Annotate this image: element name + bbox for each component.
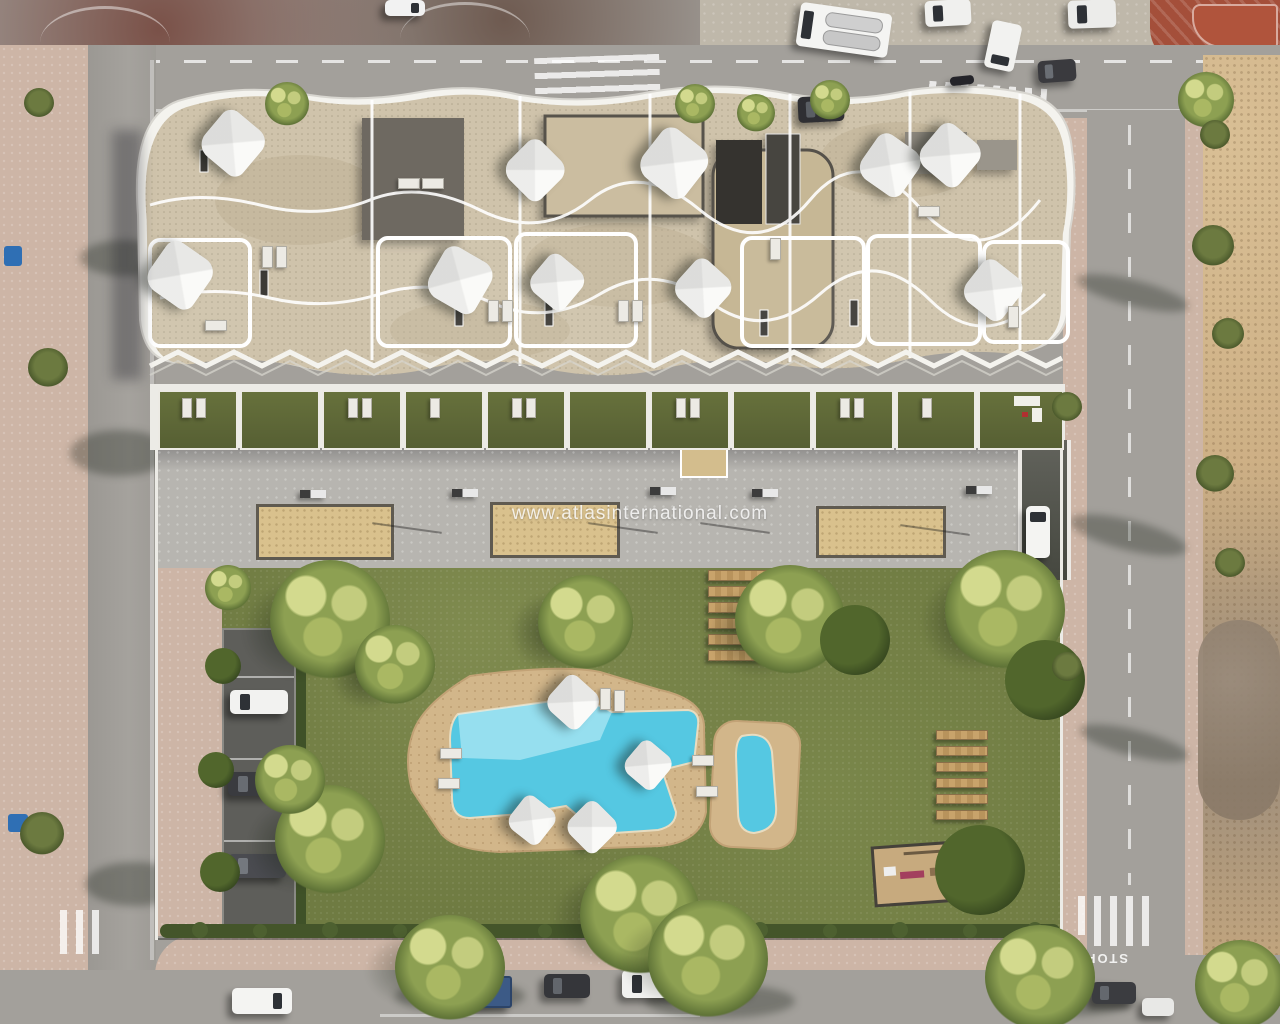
parked-car	[1068, 0, 1117, 29]
parking-car	[230, 690, 288, 714]
garden-bench-row	[936, 762, 988, 772]
roof-lounger	[770, 238, 781, 260]
street-tree	[395, 915, 505, 1020]
garden-bush	[205, 648, 241, 684]
street-palm	[675, 84, 715, 124]
sidewalk-shrub	[24, 88, 54, 118]
dirt-scrub	[1192, 225, 1234, 267]
roof-lounger	[398, 178, 420, 189]
dark-car	[1037, 59, 1076, 84]
dirt-scrub	[1215, 548, 1245, 578]
roadside-shrub	[1052, 652, 1082, 682]
pool-lounger	[696, 786, 718, 797]
roof-lounger	[488, 300, 499, 322]
garden-bench-row	[936, 810, 988, 820]
pool-lounger	[600, 688, 611, 710]
roof-lounger	[918, 206, 940, 217]
parked-car	[1092, 982, 1136, 1004]
roof-lounger	[1008, 306, 1019, 328]
building-roof	[130, 80, 1080, 380]
parked-car	[544, 974, 590, 998]
small-palm	[205, 565, 251, 611]
garden-bush	[198, 752, 234, 788]
roof-palm	[737, 94, 775, 132]
garden-bush	[200, 852, 240, 892]
roof-lounger	[632, 300, 643, 322]
dirt-scrub	[1212, 318, 1244, 350]
palm-tree	[255, 745, 325, 815]
aerial-residential-render: STOP	[0, 0, 1280, 1024]
roof-lounger	[618, 300, 629, 322]
parked-car	[385, 0, 425, 16]
roof-lounger	[262, 246, 273, 268]
garden-bush	[935, 825, 1025, 915]
garden-bench-row	[936, 794, 988, 804]
building-shadow	[112, 130, 142, 380]
pool-lounger	[440, 748, 462, 759]
palm-tree	[355, 625, 435, 705]
street-palm	[265, 82, 309, 126]
garden-bench-row	[936, 730, 988, 740]
roof-lounger	[502, 300, 513, 322]
watermark-text: www.atlasinternational.com	[400, 503, 880, 525]
pool-lounger	[614, 690, 625, 712]
garden-bush	[820, 605, 890, 675]
street-tree	[648, 900, 768, 1018]
roadside-shrub	[1052, 392, 1082, 422]
dirt-scrub	[1200, 120, 1230, 150]
roof-lounger	[205, 320, 227, 331]
garden-bench-row	[936, 746, 988, 756]
street-palm	[810, 80, 850, 120]
pool-lounger	[438, 778, 460, 789]
ramp-car	[1026, 506, 1050, 558]
parked-car	[1142, 998, 1174, 1016]
sidewalk-shrub	[20, 812, 64, 856]
parked-car	[924, 0, 971, 27]
dirt-scrub	[1196, 455, 1234, 493]
garden-bench-row	[936, 778, 988, 788]
pool-lounger	[692, 755, 714, 766]
roof-lounger	[276, 246, 287, 268]
sidewalk-shrub	[28, 348, 68, 388]
street-tree	[1195, 940, 1280, 1024]
palm-tree	[538, 575, 633, 670]
street-palm	[1178, 72, 1234, 128]
street-tree	[985, 925, 1095, 1024]
roof-lounger	[422, 178, 444, 189]
parked-pickup	[232, 988, 292, 1014]
